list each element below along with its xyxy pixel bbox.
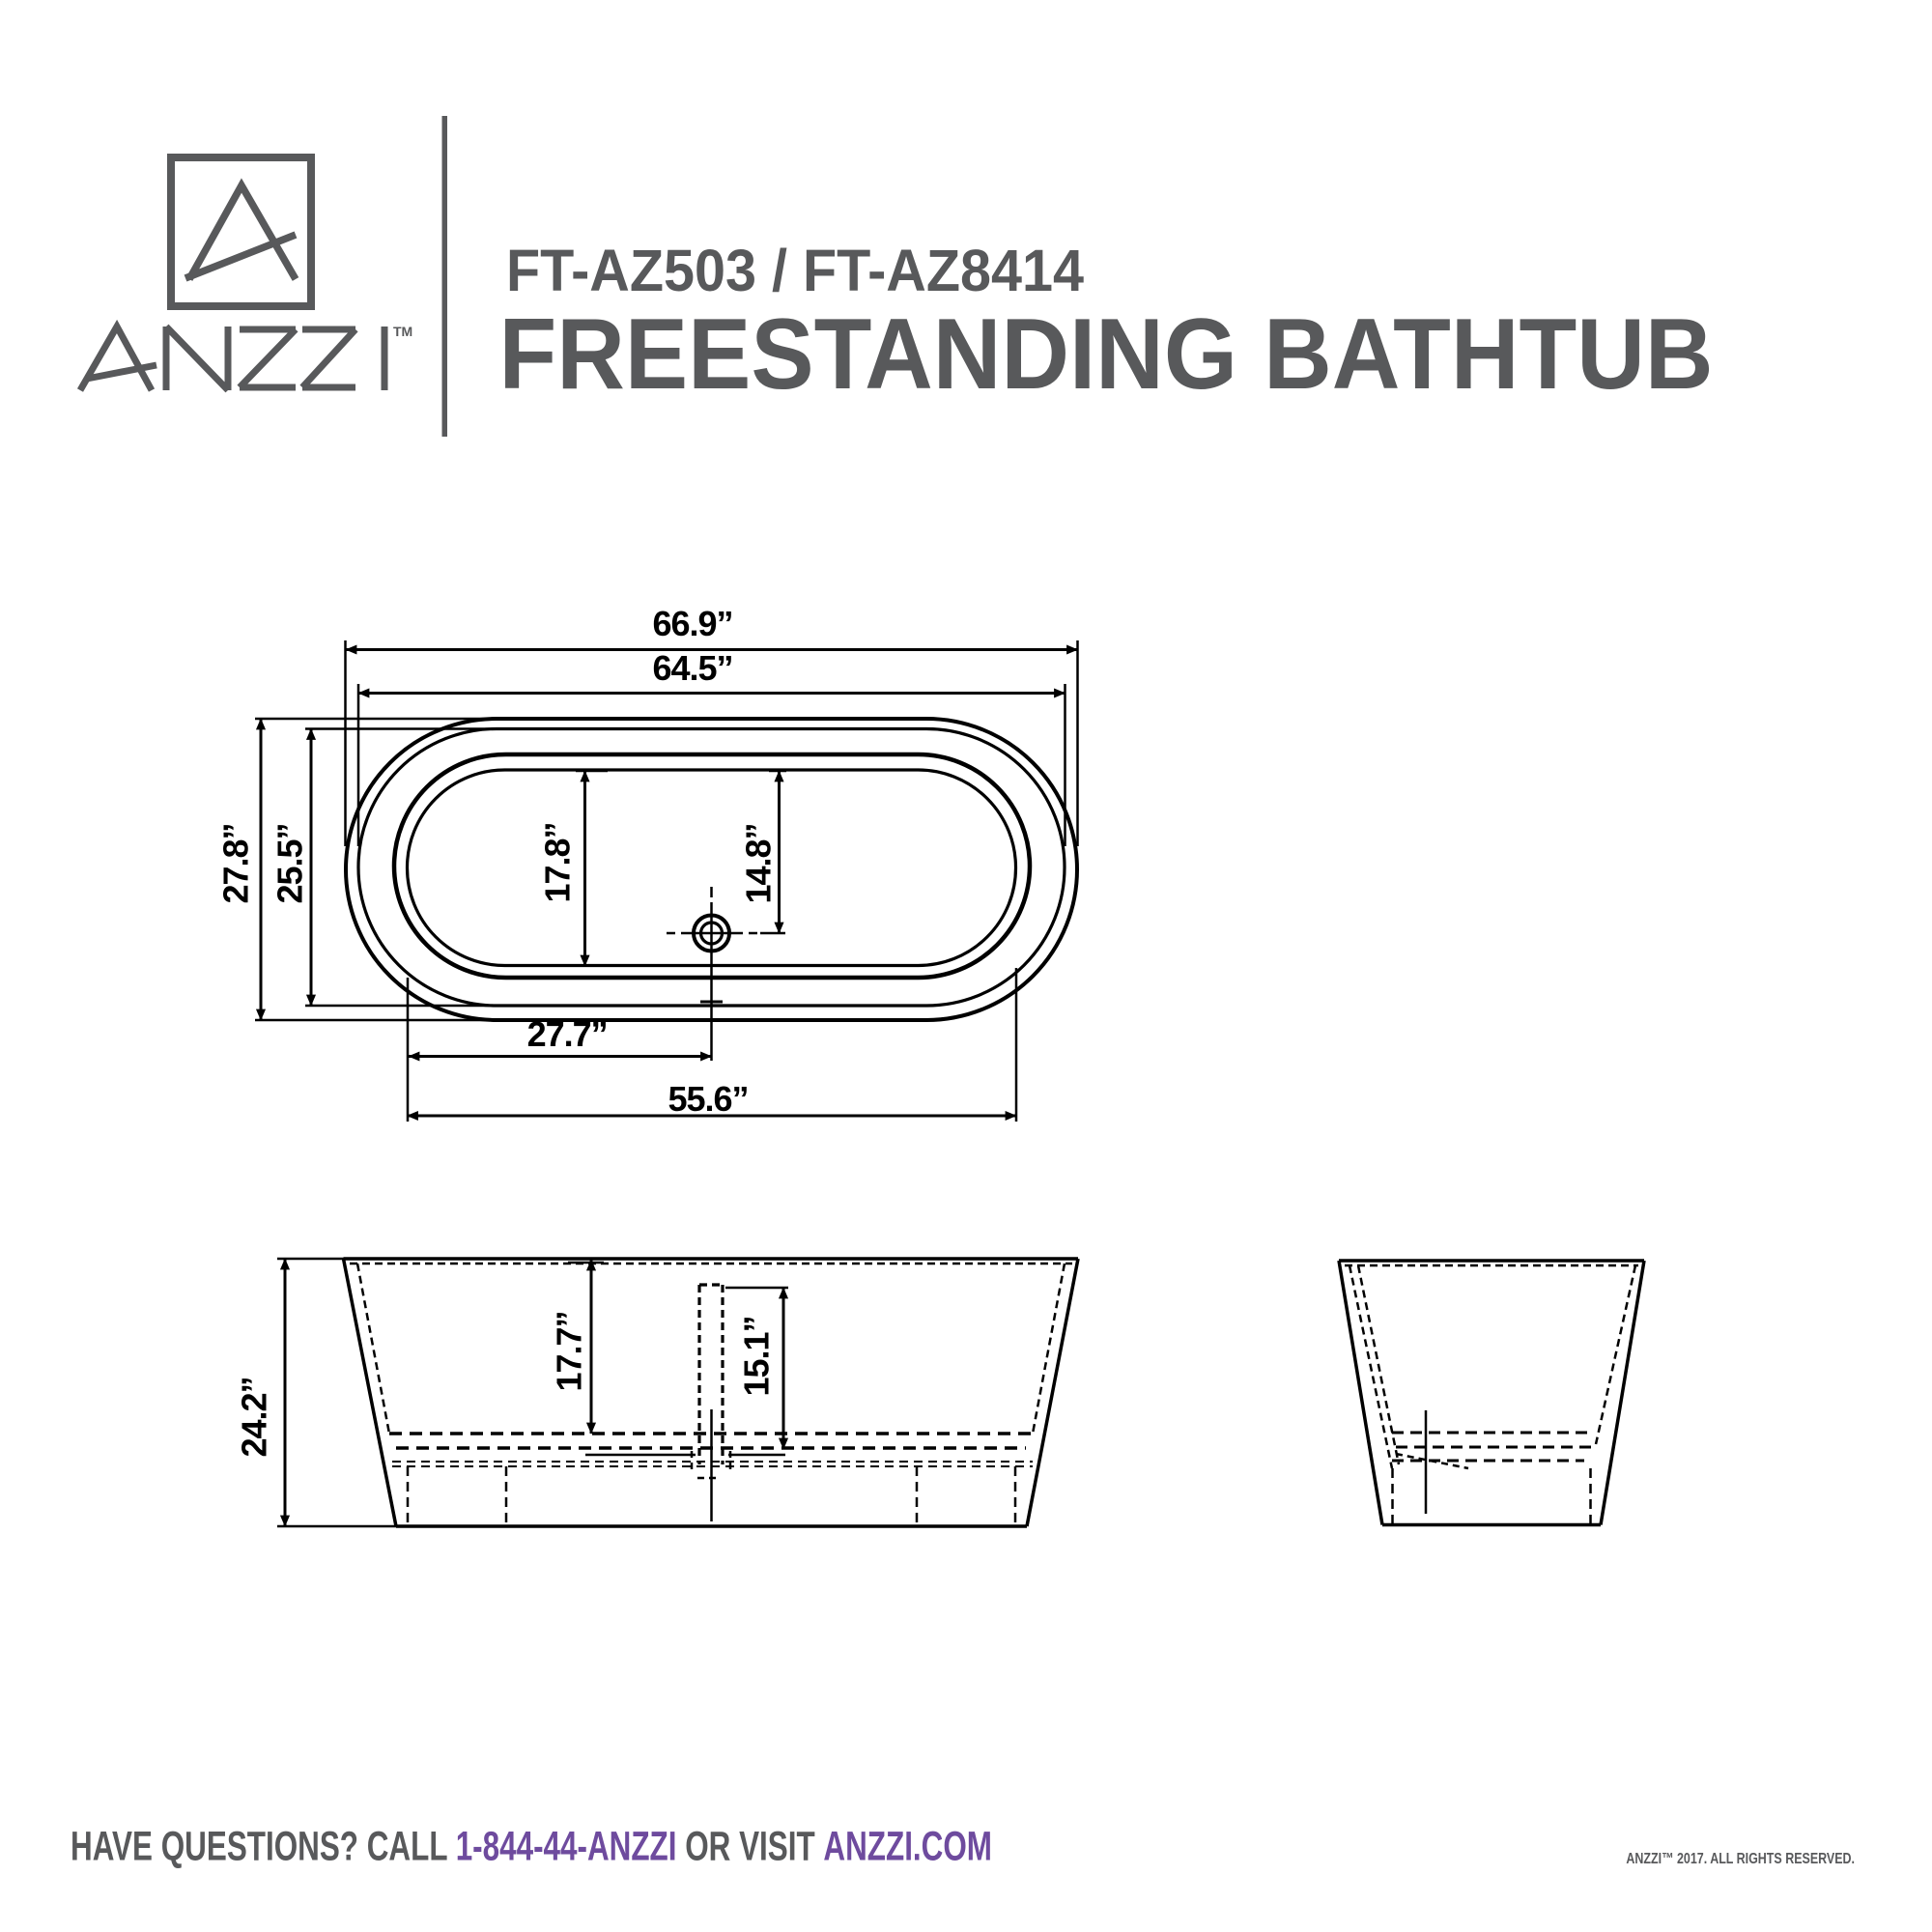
svg-text:55.6”: 55.6”: [668, 1079, 748, 1119]
svg-text:17.7”: 17.7”: [550, 1311, 589, 1391]
svg-text:27.8”: 27.8”: [216, 823, 256, 903]
svg-text:TM: TM: [393, 324, 412, 339]
svg-text:HAVE QUESTIONS? CALL 1-844-44-: HAVE QUESTIONS? CALL 1-844-44-ANZZI OR V…: [71, 1823, 992, 1869]
svg-text:27.7’’: 27.7’’: [527, 1014, 608, 1054]
svg-text:25.5”: 25.5”: [270, 823, 310, 903]
svg-text:66.9”: 66.9”: [652, 604, 732, 643]
svg-text:14.8”: 14.8”: [739, 823, 779, 903]
svg-text:ANZZI™ 2017. ALL RIGHTS RESERV: ANZZI™ 2017. ALL RIGHTS RESERVED.: [1626, 1851, 1855, 1868]
svg-text:24.2”: 24.2”: [235, 1377, 274, 1457]
svg-text:15.1”: 15.1”: [737, 1316, 777, 1396]
svg-text:FT-AZ503 / FT-AZ8414: FT-AZ503 / FT-AZ8414: [506, 238, 1084, 303]
svg-text:64.5”: 64.5”: [652, 648, 732, 688]
svg-text:17.8”: 17.8”: [538, 822, 578, 902]
svg-text:FREESTANDING BATHTUB: FREESTANDING BATHTUB: [499, 298, 1714, 411]
